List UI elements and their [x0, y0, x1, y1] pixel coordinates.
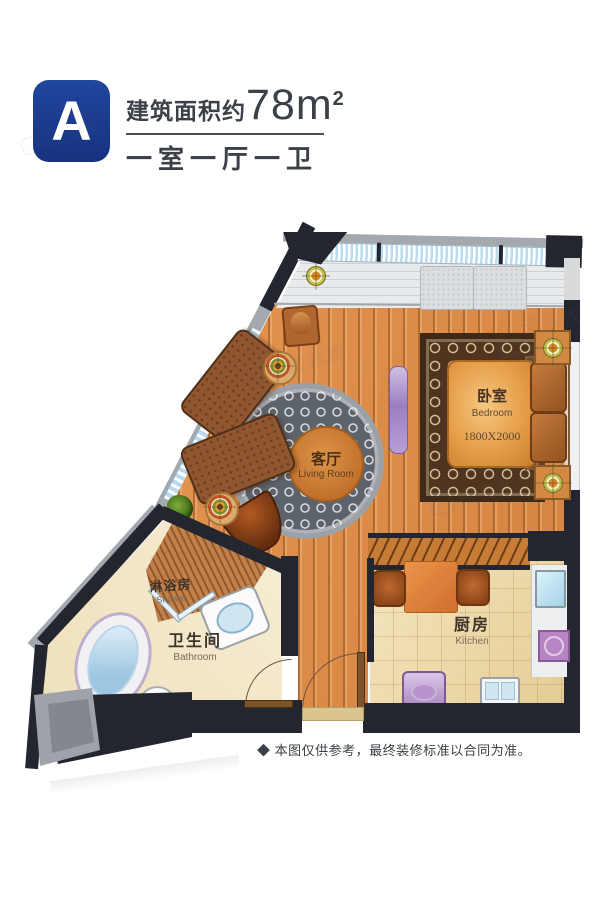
living-label-en: Living Room	[298, 469, 354, 480]
window-divider	[499, 245, 503, 264]
stove	[538, 630, 570, 662]
dining-table	[404, 561, 458, 613]
wall-bottom	[363, 703, 580, 733]
kitchen-label: 厨房 Kitchen	[432, 616, 512, 649]
kitchen-label-zh: 厨房	[454, 616, 490, 636]
dining-chair	[456, 569, 490, 606]
wall-kitchen-left	[367, 558, 374, 662]
window-seat-cushion	[473, 266, 527, 310]
bathroom-label-en: Bathroom	[173, 652, 216, 665]
window-divider	[377, 243, 381, 262]
shower-label: 淋浴房 Shower	[135, 576, 207, 608]
bedroom-label-zh: 卧室	[477, 385, 507, 406]
ceiling-light-icon	[305, 265, 327, 287]
bedroom-label-en: Bedroom	[472, 408, 513, 419]
pillow	[530, 362, 567, 413]
bathroom-label: 卫生间 Bathroom	[150, 632, 240, 665]
accent-chair	[281, 305, 320, 348]
dining-chair	[372, 570, 406, 607]
disclaimer-note: ◆ 本图仅供参考，最终装修标准以合同为准。	[257, 740, 531, 759]
wall-segment	[528, 531, 566, 561]
watermark-logo-icon: ⌂	[19, 134, 41, 156]
fridge	[535, 570, 566, 608]
bathroom-door-leaf	[244, 700, 293, 708]
kitchen-sink	[480, 677, 520, 705]
floor-plan: 卧室 Bedroom 1800X2000 客厅 Living Room	[0, 0, 600, 900]
watermark-logo-icon: ⌂	[496, 330, 523, 359]
floorplan-card: A 建筑面积约 78m 2 一室一厅一卫	[0, 0, 600, 900]
floor-lamp-icon	[207, 494, 233, 520]
living-label-zh: 客厅	[311, 448, 341, 469]
living-room-label-disc: 客厅 Living Room	[288, 426, 364, 502]
bed-dimension: 1800X2000	[464, 429, 521, 444]
bed: 卧室 Bedroom 1800X2000	[447, 360, 537, 468]
shower-label-en: Shower	[156, 593, 187, 606]
lamp-icon	[542, 472, 564, 494]
pillow	[530, 412, 567, 463]
watermark-logo-icon: ⌂	[427, 488, 456, 517]
wall-right-gap	[564, 258, 580, 304]
window-seat-cushion	[420, 266, 474, 310]
tv-panel	[389, 366, 408, 454]
entry-threshold	[302, 707, 364, 721]
entry-door-leaf	[357, 652, 365, 710]
watermark-logo-icon: ⌂	[149, 550, 178, 579]
watermark-logo-icon: ⌂	[237, 360, 266, 389]
bathroom-label-zh: 卫生间	[168, 632, 222, 652]
wall-bath-hall	[281, 556, 298, 656]
kitchen-label-en: Kitchen	[455, 636, 488, 649]
